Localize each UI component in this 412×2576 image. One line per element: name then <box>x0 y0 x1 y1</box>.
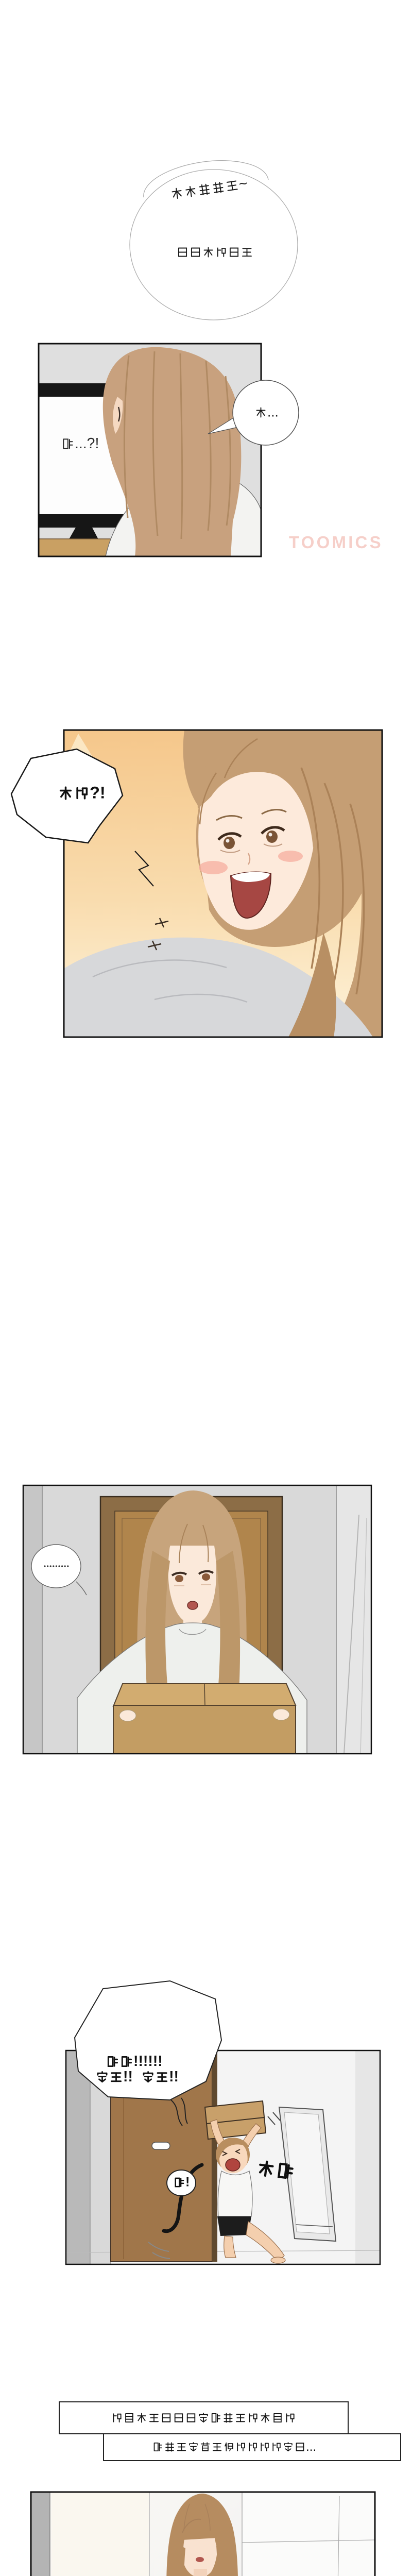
svg-text:...: ... <box>267 404 279 420</box>
svg-text:!: ! <box>185 2175 190 2190</box>
svg-text:!!!!!!: !!!!!! <box>133 2053 163 2070</box>
svg-text:?!: ?! <box>90 783 106 802</box>
svg-text:!!: !! <box>169 2069 179 2085</box>
svg-text:!!: !! <box>123 2069 133 2085</box>
svg-text:...: ... <box>306 2440 316 2454</box>
svg-text:...?!: ...?! <box>75 435 99 452</box>
svg-text:TOOMICS: TOOMICS <box>289 533 383 552</box>
